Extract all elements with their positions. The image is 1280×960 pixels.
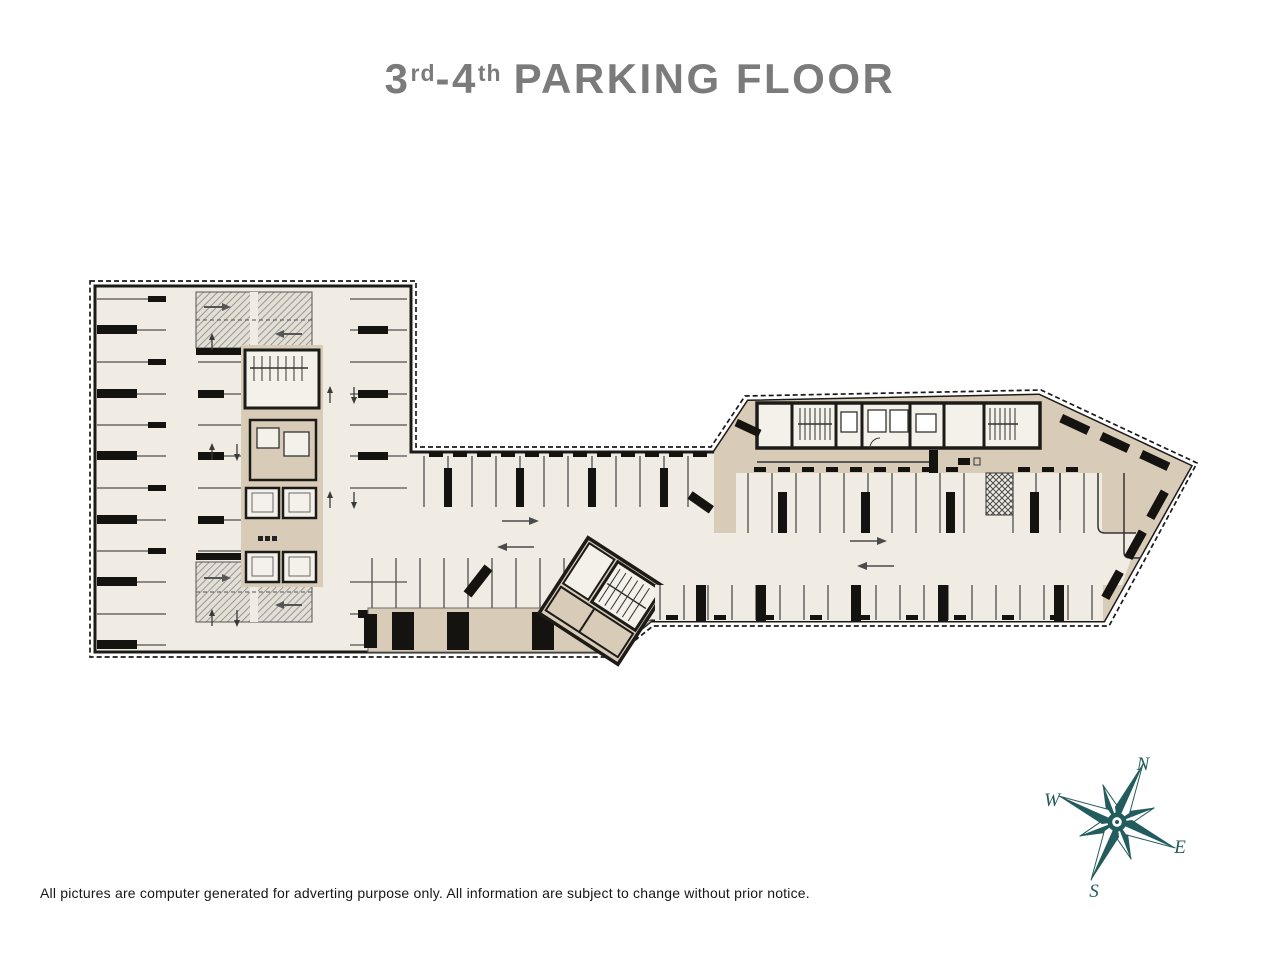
shaft-crosshatch [986,473,1013,515]
page: 3rd-4thPARKING FLOOR [0,0,1280,960]
compass-rose: N W E S [1033,738,1202,907]
right-wing [655,395,1191,621]
compass-east-label: E [1173,837,1186,858]
compass-west-label: W [1044,790,1062,811]
compass-north-label: N [1136,754,1151,775]
stairwell [245,350,319,408]
right-core-rooms [757,403,1040,448]
left-core [241,345,323,587]
floor-plan: N W E S [0,0,1280,960]
service-rooms [250,420,316,480]
compass-south-label: S [1089,881,1099,902]
disclaimer-text: All pictures are computer generated for … [40,885,810,901]
